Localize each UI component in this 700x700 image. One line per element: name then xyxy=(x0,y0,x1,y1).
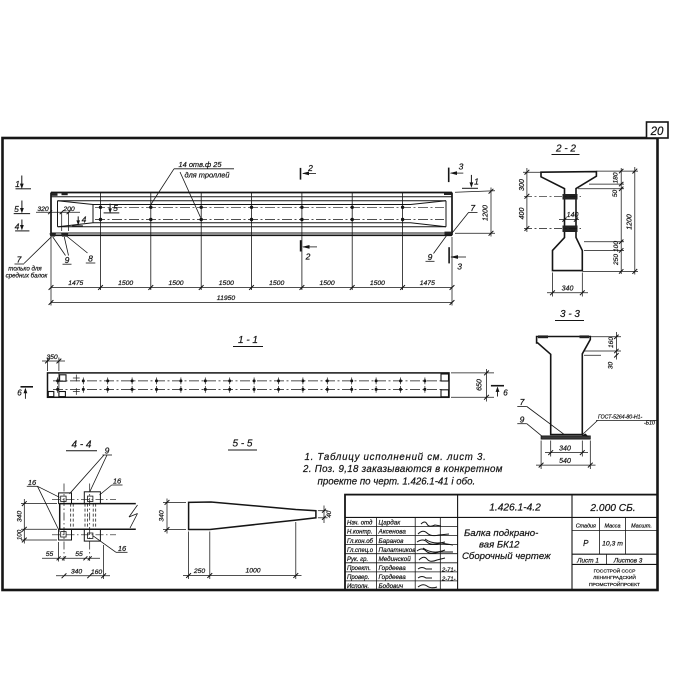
svg-text:2: 2 xyxy=(305,252,311,262)
svg-text:Бодович: Бодович xyxy=(379,582,404,590)
svg-text:7: 7 xyxy=(17,255,22,265)
svg-text:650: 650 xyxy=(477,379,484,391)
svg-text:8: 8 xyxy=(88,254,93,264)
svg-text:55: 55 xyxy=(46,551,54,558)
svg-text:16: 16 xyxy=(28,478,37,487)
svg-text:Провер.: Провер. xyxy=(347,575,369,581)
svg-text:340: 340 xyxy=(562,286,574,293)
svg-text:2-71-: 2-71- xyxy=(441,577,456,583)
svg-text:1200: 1200 xyxy=(481,205,490,221)
svg-text:вая БК12: вая БК12 xyxy=(479,540,520,551)
svg-text:1000: 1000 xyxy=(245,568,260,575)
svg-text:7: 7 xyxy=(470,203,475,213)
svg-text:1500: 1500 xyxy=(269,280,284,287)
svg-text:3 - 3: 3 - 3 xyxy=(560,309,580,320)
svg-text:3: 3 xyxy=(457,262,462,272)
svg-text:3: 3 xyxy=(459,162,464,172)
svg-text:1: 1 xyxy=(474,177,479,187)
svg-text:9: 9 xyxy=(65,255,70,265)
svg-text:5: 5 xyxy=(113,203,118,213)
svg-text:Баранов: Баранов xyxy=(379,538,405,545)
svg-text:Стадия: Стадия xyxy=(576,524,596,530)
svg-text:1500: 1500 xyxy=(319,280,334,287)
svg-text:проекте по черт. 1.426.1-41 i: проекте по черт. 1.426.1-41 i обо. xyxy=(318,477,476,488)
svg-text:16: 16 xyxy=(118,544,127,553)
svg-text:Палатников: Палатников xyxy=(379,547,417,554)
svg-text:100: 100 xyxy=(613,241,620,252)
svg-text:14 отв.ф 25: 14 отв.ф 25 xyxy=(179,160,223,169)
svg-text:350: 350 xyxy=(46,354,58,361)
svg-text:ГОСТ-5264-80-Н1-: ГОСТ-5264-80-Н1- xyxy=(598,415,643,421)
svg-text:1475: 1475 xyxy=(68,280,83,287)
svg-text:1500: 1500 xyxy=(370,280,385,287)
svg-text:11950: 11950 xyxy=(217,295,236,302)
svg-text:2: 2 xyxy=(307,163,313,173)
svg-text:1 - 1: 1 - 1 xyxy=(238,335,258,346)
svg-text:1475: 1475 xyxy=(420,280,435,287)
svg-text:50: 50 xyxy=(612,190,619,198)
svg-text:10,3 т: 10,3 т xyxy=(602,541,623,548)
svg-text:-Б10: -Б10 xyxy=(644,421,655,427)
svg-text:1200: 1200 xyxy=(626,214,633,230)
svg-text:1500: 1500 xyxy=(168,280,183,287)
svg-text:Гордеева: Гордеева xyxy=(379,573,407,581)
svg-text:340: 340 xyxy=(71,569,83,576)
svg-text:9: 9 xyxy=(520,414,525,424)
svg-text:9: 9 xyxy=(105,446,110,456)
svg-text:Р: Р xyxy=(583,539,589,548)
svg-text:Н.контр.: Н.контр. xyxy=(347,530,372,536)
svg-text:140: 140 xyxy=(567,212,579,219)
svg-text:180: 180 xyxy=(613,172,620,183)
svg-text:2.000 СБ.: 2.000 СБ. xyxy=(589,503,635,514)
svg-text:Балка подкрано-: Балка подкрано- xyxy=(464,528,538,539)
svg-text:9: 9 xyxy=(428,252,433,262)
svg-text:Цардак: Цардак xyxy=(379,519,402,527)
svg-text:6: 6 xyxy=(503,389,508,398)
svg-text:6: 6 xyxy=(17,389,22,398)
svg-text:5 - 5: 5 - 5 xyxy=(232,439,252,450)
svg-text:400: 400 xyxy=(519,208,526,220)
svg-text:160: 160 xyxy=(608,337,615,348)
svg-text:250: 250 xyxy=(613,254,620,266)
svg-text:300: 300 xyxy=(519,179,526,191)
svg-text:5: 5 xyxy=(14,204,19,214)
svg-text:Гл.кон.об: Гл.кон.об xyxy=(347,539,374,545)
svg-text:100: 100 xyxy=(17,529,24,540)
svg-text:1500: 1500 xyxy=(219,280,234,287)
svg-text:250: 250 xyxy=(193,568,206,575)
svg-text:Гл.спец.о: Гл.спец.о xyxy=(347,548,374,554)
svg-text:Исполн.: Исполн. xyxy=(347,584,369,590)
svg-text:7: 7 xyxy=(520,397,525,407)
svg-text:340: 340 xyxy=(17,511,24,523)
svg-text:340: 340 xyxy=(159,510,166,522)
svg-text:4: 4 xyxy=(82,215,87,225)
svg-text:Нач. отд: Нач. отд xyxy=(347,521,373,527)
svg-text:Аксенова: Аксенова xyxy=(378,529,407,536)
svg-text:средних балок: средних балок xyxy=(6,273,49,280)
svg-text:1. Таблицу исполнений см. лис: 1. Таблицу исполнений см. лист 3. xyxy=(305,452,487,463)
svg-text:для троллей: для троллей xyxy=(185,171,230,180)
svg-text:340: 340 xyxy=(559,445,571,452)
svg-text:2 - 2: 2 - 2 xyxy=(555,144,576,155)
svg-text:Рук. гр.: Рук. гр. xyxy=(347,557,368,563)
svg-text:Мединской: Мединской xyxy=(379,555,412,563)
svg-text:Масса: Масса xyxy=(605,524,621,530)
svg-text:Проект.: Проект. xyxy=(347,566,371,572)
svg-text:2. Поз. 9,18 заказываются в ко: 2. Поз. 9,18 заказываются в конкретном xyxy=(302,464,503,475)
svg-text:30: 30 xyxy=(608,362,615,370)
svg-text:только для: только для xyxy=(8,266,42,273)
svg-text:320: 320 xyxy=(37,206,49,213)
svg-text:540: 540 xyxy=(559,458,571,465)
svg-text:2-71-: 2-71- xyxy=(441,568,456,574)
svg-text:55: 55 xyxy=(75,551,83,558)
svg-text:4: 4 xyxy=(15,222,20,232)
svg-text:Гордеева: Гордеева xyxy=(379,564,407,572)
svg-text:20: 20 xyxy=(650,126,664,138)
svg-text:1.426.1-4.2: 1.426.1-4.2 xyxy=(489,503,541,514)
svg-text:160: 160 xyxy=(91,569,103,576)
svg-text:Сборочный чертеж: Сборочный чертеж xyxy=(462,551,551,562)
svg-text:1500: 1500 xyxy=(118,280,133,287)
svg-text:Масшт.: Масшт. xyxy=(631,524,652,530)
svg-text:Листов 3: Листов 3 xyxy=(613,558,643,565)
svg-text:Лист 1: Лист 1 xyxy=(576,558,599,565)
svg-text:40: 40 xyxy=(326,510,333,517)
svg-text:4 - 4: 4 - 4 xyxy=(71,440,91,451)
svg-text:16: 16 xyxy=(113,477,122,486)
svg-text:1: 1 xyxy=(15,179,20,189)
